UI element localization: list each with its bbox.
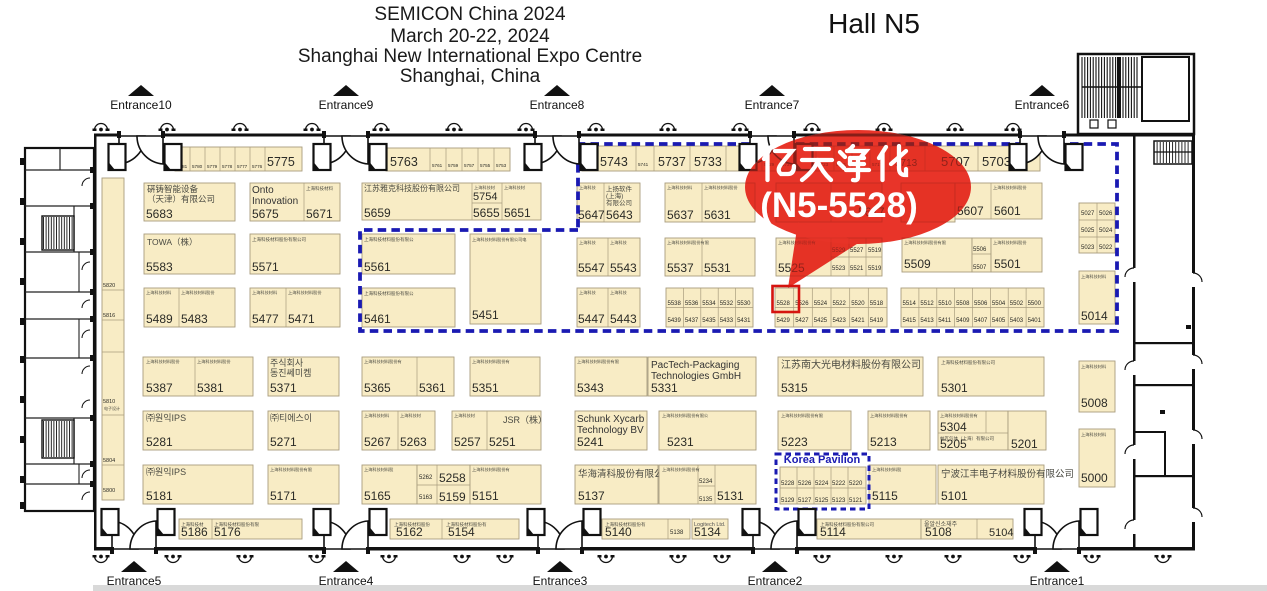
svg-text:（天津）有限公司: （天津）有限公司 (147, 194, 215, 204)
svg-text:5023: 5023 (1081, 245, 1095, 251)
svg-text:5780: 5780 (192, 164, 203, 169)
svg-text:5131: 5131 (717, 489, 744, 503)
svg-text:上海科技材料股份有限: 上海科技材料股份有限 (904, 239, 947, 246)
svg-text:Entrance9: Entrance9 (319, 98, 374, 112)
svg-text:㈜원익IPS: ㈜원익IPS (146, 412, 186, 423)
svg-text:5510: 5510 (938, 301, 952, 307)
svg-text:5171: 5171 (270, 489, 297, 503)
svg-text:5267: 5267 (364, 435, 391, 449)
svg-text:5538: 5538 (668, 301, 682, 307)
svg-text:5135: 5135 (699, 497, 713, 503)
svg-text:5763: 5763 (390, 155, 418, 169)
svg-text:5547: 5547 (578, 261, 605, 275)
svg-text:5223: 5223 (781, 435, 808, 449)
svg-text:5435: 5435 (702, 318, 716, 324)
svg-text:5014: 5014 (1081, 309, 1108, 323)
svg-text:5251: 5251 (489, 435, 516, 449)
svg-text:5804: 5804 (103, 458, 115, 464)
svg-text:5810: 5810 (103, 399, 115, 405)
svg-text:5234: 5234 (699, 479, 713, 485)
svg-text:5151: 5151 (472, 489, 499, 503)
svg-text:5231: 5231 (667, 435, 694, 449)
svg-text:5108: 5108 (925, 525, 952, 539)
svg-text:5351: 5351 (472, 381, 499, 395)
svg-text:5543: 5543 (610, 261, 637, 275)
svg-text:5439: 5439 (668, 318, 682, 324)
svg-text:5115: 5115 (872, 489, 898, 503)
svg-text:5778: 5778 (222, 164, 233, 169)
svg-text:5521: 5521 (850, 266, 864, 272)
svg-text:5530: 5530 (737, 301, 751, 307)
svg-text:주식회사: 주식회사 (270, 358, 304, 368)
svg-text:5226: 5226 (798, 481, 812, 487)
svg-text:5101: 5101 (941, 489, 968, 503)
svg-text:上海科技材料: 上海科技材料 (1081, 273, 1107, 280)
svg-text:5387: 5387 (146, 381, 173, 395)
svg-text:5451: 5451 (472, 308, 499, 322)
svg-text:5263: 5263 (400, 435, 427, 449)
svg-text:5163: 5163 (419, 495, 433, 501)
svg-text:5447: 5447 (578, 312, 605, 326)
svg-text:5181: 5181 (146, 489, 173, 503)
svg-text:5431: 5431 (737, 318, 751, 324)
svg-text:5816: 5816 (103, 313, 115, 319)
svg-text:5026: 5026 (1099, 211, 1113, 217)
svg-text:5527: 5527 (850, 248, 864, 254)
svg-text:上海科技材料股份有: 上海科技材料股份有 (472, 466, 510, 473)
svg-text:TOWA（株）: TOWA（株） (147, 237, 198, 247)
svg-text:上海科技材料股份有限: 上海科技材料股份有限 (667, 239, 710, 246)
svg-text:5506: 5506 (973, 247, 987, 253)
svg-text:5213: 5213 (870, 435, 897, 449)
svg-text:上海科技: 上海科技 (579, 289, 597, 296)
svg-text:Schunk Xycarb: Schunk Xycarb (577, 414, 645, 425)
svg-text:电子设计: 电子设计 (104, 405, 120, 411)
svg-text:5027: 5027 (1081, 211, 1095, 217)
svg-text:上海科技材料股份有: 上海科技材料股份有 (472, 358, 510, 365)
svg-text:5571: 5571 (252, 260, 279, 274)
svg-text:(上海): (上海) (606, 191, 623, 200)
svg-text:Innovation: Innovation (252, 196, 298, 207)
svg-text:上海科技材: 上海科技材 (454, 412, 475, 419)
svg-text:5754: 5754 (473, 191, 497, 203)
svg-text:Entrance8: Entrance8 (530, 98, 585, 112)
svg-text:上海科技材料股: 上海科技材料股 (364, 466, 394, 473)
svg-text:5154: 5154 (448, 525, 475, 539)
svg-text:5262: 5262 (419, 475, 433, 481)
svg-text:5222: 5222 (832, 481, 846, 487)
svg-text:上海科技材料股份有限: 上海科技材料股份有限 (781, 412, 824, 419)
svg-text:上扬软件: 上扬软件 (606, 184, 633, 193)
svg-text:5127: 5127 (798, 498, 812, 504)
svg-text:5415: 5415 (903, 318, 917, 324)
svg-text:5757: 5757 (464, 163, 475, 168)
svg-text:5483: 5483 (181, 312, 208, 326)
svg-text:上海科技材料: 上海科技材料 (252, 289, 278, 296)
svg-text:5775: 5775 (267, 155, 295, 169)
svg-text:5508: 5508 (956, 301, 970, 307)
svg-text:上海科技材料: 上海科技材料 (146, 289, 172, 296)
svg-text:5733: 5733 (694, 155, 722, 169)
svg-text:5403: 5403 (1010, 318, 1024, 324)
svg-text:上海科技材料股份有限公司电: 上海科技材料股份有限公司电 (472, 236, 527, 243)
svg-text:5779: 5779 (207, 164, 218, 169)
svg-text:5500: 5500 (1028, 301, 1042, 307)
svg-text:江苏南大光电材料股份有限公司: 江苏南大光电材料股份有限公司 (781, 358, 921, 371)
svg-text:5651: 5651 (504, 206, 531, 220)
svg-text:上海科技材料股份有: 上海科技材料股份有 (870, 412, 908, 419)
svg-text:5524: 5524 (814, 301, 828, 307)
svg-text:5759: 5759 (448, 163, 459, 168)
svg-text:5461: 5461 (364, 312, 391, 326)
svg-text:5409: 5409 (956, 318, 970, 324)
svg-text:5534: 5534 (702, 301, 716, 307)
svg-text:5631: 5631 (704, 208, 731, 222)
svg-text:上海科技材料股份有限公: 上海科技材料股份有限公 (364, 290, 414, 297)
svg-text:5471: 5471 (288, 312, 315, 326)
svg-text:5125: 5125 (815, 498, 829, 504)
svg-text:5523: 5523 (832, 266, 846, 272)
svg-text:Korea Pavilion: Korea Pavilion (784, 454, 861, 466)
svg-text:5777: 5777 (237, 164, 248, 169)
svg-text:5427: 5427 (795, 318, 809, 324)
svg-text:5531: 5531 (704, 261, 731, 275)
svg-text:上海科技材: 上海科技材 (504, 184, 525, 191)
svg-text:5537: 5537 (667, 261, 694, 275)
svg-text:Shanghai New International Exp: Shanghai New International Expo Centre (298, 46, 642, 67)
svg-text:5257: 5257 (454, 435, 481, 449)
svg-text:上海科技材料股份有: 上海科技材料股份有 (940, 412, 978, 419)
svg-text:上海科技材料股份: 上海科技材料股份 (146, 358, 180, 365)
svg-text:5477: 5477 (252, 312, 279, 326)
svg-text:5413: 5413 (920, 318, 934, 324)
svg-text:上海科技材料股份有限: 上海科技材料股份有限 (270, 466, 313, 473)
svg-text:5315: 5315 (781, 381, 808, 395)
svg-text:Entrance10: Entrance10 (110, 98, 172, 112)
svg-text:5186: 5186 (181, 525, 208, 539)
svg-text:5761: 5761 (432, 163, 443, 168)
svg-text:上海科技材料股份有: 上海科技材料股份有 (364, 358, 402, 365)
svg-text:上海科技材料股份: 上海科技材料股份 (993, 184, 1027, 191)
svg-text:5437: 5437 (685, 318, 699, 324)
svg-text:上海科技材料股份有限公: 上海科技材料股份有限公 (662, 412, 709, 419)
svg-text:5407: 5407 (974, 318, 988, 324)
svg-text:上海科技材料股份: 上海科技材料股份 (288, 289, 322, 296)
svg-text:5176: 5176 (214, 525, 241, 539)
svg-text:5820: 5820 (103, 283, 115, 289)
svg-text:上海科技材料股份有限公司: 上海科技材料股份有限公司 (941, 359, 995, 366)
svg-text:5528: 5528 (777, 301, 791, 307)
svg-text:5502: 5502 (1010, 301, 1024, 307)
svg-text:5429: 5429 (777, 318, 791, 324)
svg-text:5121: 5121 (849, 498, 863, 504)
svg-text:5514: 5514 (903, 301, 917, 307)
svg-text:5526: 5526 (795, 301, 809, 307)
svg-text:5137: 5137 (578, 489, 605, 503)
svg-text:5008: 5008 (1081, 396, 1108, 410)
svg-text:Hall N5: Hall N5 (828, 8, 920, 39)
svg-text:5331: 5331 (651, 381, 678, 395)
svg-text:上海科技材: 上海科技材 (474, 184, 495, 191)
svg-text:5381: 5381 (197, 381, 224, 395)
svg-text:上海科技材料股份: 上海科技材料股份 (197, 358, 231, 365)
svg-text:上海科技: 上海科技 (610, 289, 628, 296)
svg-text:5140: 5140 (605, 525, 632, 539)
svg-text:有限公司: 有限公司 (606, 198, 632, 207)
svg-text:硏铸智能设备: 硏铸智能设备 (147, 184, 199, 194)
svg-text:5755: 5755 (480, 163, 491, 168)
svg-text:5519: 5519 (868, 248, 882, 254)
svg-text:5520: 5520 (851, 301, 865, 307)
svg-text:㈜티에스이: ㈜티에스이 (270, 412, 312, 423)
svg-text:5401: 5401 (1028, 318, 1042, 324)
svg-text:5361: 5361 (419, 381, 446, 395)
svg-text:上海科技材料: 上海科技材料 (1081, 363, 1107, 370)
svg-text:5129: 5129 (781, 498, 795, 504)
svg-text:5507: 5507 (973, 265, 987, 271)
svg-text:上海科技材料: 上海科技材料 (306, 185, 333, 192)
svg-text:5365: 5365 (364, 381, 391, 395)
svg-text:5489: 5489 (146, 312, 173, 326)
svg-text:Entrance6: Entrance6 (1015, 98, 1070, 112)
svg-text:5411: 5411 (938, 318, 952, 324)
svg-text:5343: 5343 (577, 381, 604, 395)
svg-text:5501: 5501 (994, 257, 1021, 271)
svg-text:5518: 5518 (870, 301, 884, 307)
svg-text:上海科技材料: 上海科技材料 (364, 412, 390, 419)
svg-text:5000: 5000 (1081, 471, 1108, 485)
svg-text:5281: 5281 (146, 435, 173, 449)
svg-text:5506: 5506 (974, 301, 988, 307)
svg-text:5421: 5421 (851, 318, 865, 324)
svg-text:5271: 5271 (270, 435, 297, 449)
svg-text:5425: 5425 (814, 318, 828, 324)
svg-text:5241: 5241 (577, 435, 604, 449)
svg-text:5301: 5301 (941, 381, 968, 395)
svg-text:5405: 5405 (992, 318, 1006, 324)
svg-text:上海科技: 上海科技 (579, 184, 597, 191)
svg-text:5304: 5304 (940, 420, 967, 434)
svg-text:5024: 5024 (1099, 228, 1113, 234)
svg-text:5205: 5205 (940, 437, 967, 451)
svg-text:Onto: Onto (252, 185, 274, 196)
svg-text:5512: 5512 (920, 301, 934, 307)
svg-text:5134: 5134 (694, 525, 721, 539)
svg-text:上海科技: 上海科技 (610, 239, 628, 246)
svg-text:5637: 5637 (667, 208, 694, 222)
svg-text:5258: 5258 (439, 471, 466, 485)
svg-text:5753: 5753 (496, 163, 507, 168)
svg-text:上海科技材料股份有限: 上海科技材料股份有限 (577, 358, 620, 365)
svg-text:5123: 5123 (832, 498, 846, 504)
svg-text:㈜원익IPS: ㈜원익IPS (146, 466, 186, 477)
svg-text:上海科技材料: 上海科技材料 (667, 184, 693, 191)
svg-text:上海科技材料股份: 上海科技材料股份 (704, 184, 738, 191)
svg-text:5743: 5743 (600, 155, 628, 169)
svg-text:5741: 5741 (638, 162, 649, 167)
svg-text:5220: 5220 (849, 481, 863, 487)
svg-text:Entrance7: Entrance7 (745, 98, 800, 112)
svg-text:5025: 5025 (1081, 228, 1095, 234)
svg-text:5519: 5519 (868, 266, 882, 272)
svg-text:SEMICON China 2024: SEMICON China 2024 (374, 4, 566, 25)
svg-text:上海科技: 上海科技 (579, 239, 597, 246)
svg-text:PacTech-Packaging: PacTech-Packaging (651, 360, 739, 371)
svg-text:JSR（株）: JSR（株） (503, 414, 547, 425)
svg-text:5737: 5737 (658, 155, 686, 169)
svg-text:5114: 5114 (820, 525, 846, 539)
svg-text:5536: 5536 (685, 301, 699, 307)
svg-text:5800: 5800 (103, 488, 115, 494)
svg-text:5201: 5201 (1011, 437, 1038, 451)
svg-text:上海科技材料: 上海科技材料 (1081, 431, 1107, 438)
svg-text:5371: 5371 (270, 381, 297, 395)
svg-text:5683: 5683 (146, 207, 173, 221)
svg-text:上海科技材料股份有限公司: 上海科技材料股份有限公司 (252, 236, 306, 243)
svg-text:동진쎄미켐: 동진쎄미켐 (270, 367, 311, 378)
svg-text:上海科技材料股份: 上海科技材料股份 (181, 289, 215, 296)
svg-text:5165: 5165 (364, 489, 391, 503)
svg-text:5224: 5224 (815, 481, 829, 487)
svg-text:上海科技材料股份: 上海科技材料股份 (993, 239, 1027, 246)
svg-text:March 20-22, 2024: March 20-22, 2024 (390, 26, 550, 47)
svg-text:5601: 5601 (994, 204, 1021, 218)
svg-text:上海科技材: 上海科技材 (400, 412, 421, 419)
svg-text:江苏雅克科技股份有限公司: 江苏雅克科技股份有限公司 (364, 183, 460, 193)
svg-text:5583: 5583 (146, 260, 173, 274)
svg-text:5138: 5138 (670, 530, 684, 536)
svg-text:5443: 5443 (610, 312, 637, 326)
svg-text:5655: 5655 (473, 206, 500, 220)
svg-text:5561: 5561 (364, 260, 391, 274)
svg-text:(N5-5528): (N5-5528) (760, 186, 918, 225)
svg-text:5433: 5433 (720, 318, 734, 324)
svg-text:上海科技材料股份有: 上海科技材料股份有 (662, 466, 700, 473)
svg-text:Shanghai, China: Shanghai, China (400, 66, 541, 87)
svg-text:5162: 5162 (396, 525, 423, 539)
svg-text:上海科技材料股份有限公: 上海科技材料股份有限公 (364, 236, 414, 243)
svg-text:5659: 5659 (364, 206, 391, 220)
svg-text:5104: 5104 (989, 527, 1013, 539)
svg-text:5675: 5675 (252, 207, 279, 221)
svg-text:5703: 5703 (982, 154, 1011, 169)
svg-text:5643: 5643 (606, 208, 633, 222)
svg-text:5504: 5504 (992, 301, 1006, 307)
svg-text:5776: 5776 (252, 164, 263, 169)
svg-text:5423: 5423 (833, 318, 847, 324)
svg-text:5419: 5419 (870, 318, 884, 324)
svg-text:5532: 5532 (720, 301, 734, 307)
svg-text:5159: 5159 (439, 490, 466, 504)
svg-text:上海科技材料股: 上海科技材料股 (872, 466, 902, 473)
svg-text:5022: 5022 (1099, 245, 1113, 251)
svg-text:5671: 5671 (306, 207, 333, 221)
svg-text:5228: 5228 (781, 481, 795, 487)
svg-text:5509: 5509 (904, 257, 931, 271)
svg-text:5522: 5522 (833, 301, 847, 307)
svg-text:宁波江丰电子材料股份有限公司: 宁波江丰电子材料股份有限公司 (941, 468, 1074, 480)
svg-text:5647: 5647 (578, 208, 605, 222)
